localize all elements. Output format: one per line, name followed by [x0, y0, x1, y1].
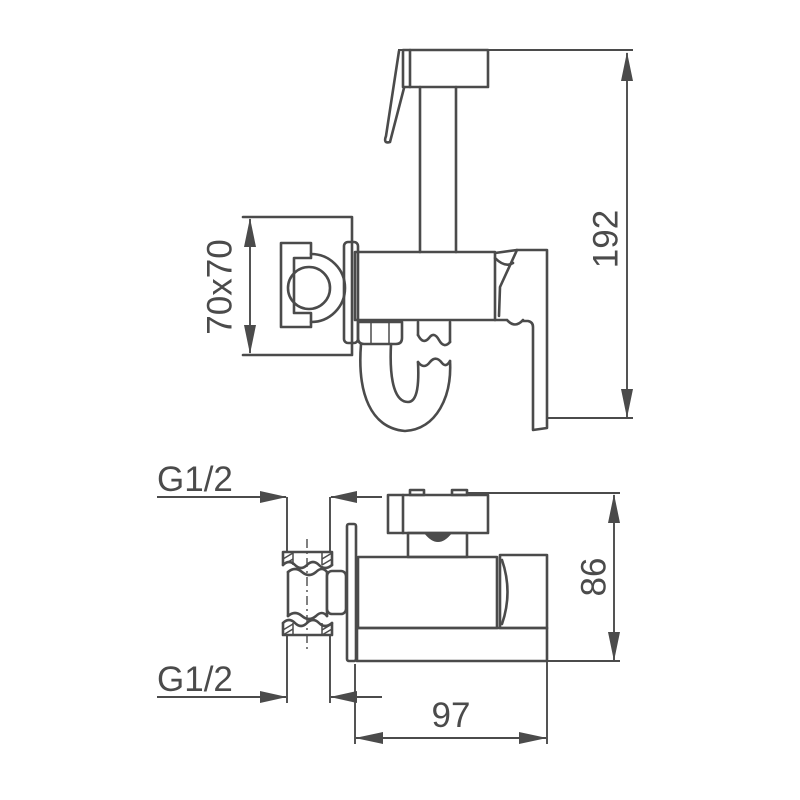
extension-lines — [287, 497, 330, 551]
arrow-up-icon — [621, 52, 633, 81]
inlet-pipe — [283, 539, 346, 650]
thread-bottom-label: G1/2 — [157, 660, 233, 699]
thread-top-label: G1/2 — [157, 460, 233, 499]
valve-body — [355, 252, 495, 320]
arrow-left-icon — [355, 732, 383, 744]
hose-nut — [358, 322, 402, 344]
handle-plan-arc — [502, 560, 508, 624]
plan-view: G1/2 G1/2 86 — [157, 460, 620, 744]
dimension-97: 97 — [355, 631, 547, 744]
handle-base-bump — [495, 320, 523, 325]
depth-dimension-label: 86 — [574, 558, 613, 597]
arrow-down-icon — [608, 632, 620, 661]
sprayer-head — [403, 50, 488, 87]
hose-inner-curve — [391, 344, 419, 402]
lever-handle-neck-line — [499, 250, 517, 316]
body-lower-band — [357, 628, 547, 661]
arrow-right-icon — [260, 491, 287, 503]
arrow-right-icon — [260, 691, 287, 703]
arrow-up-icon — [608, 494, 620, 523]
hose-break-line-2 — [418, 359, 450, 366]
valve-body-plan — [358, 557, 497, 628]
height-dimension-label: 192 — [586, 210, 625, 268]
pipe-connector — [327, 571, 346, 614]
extension-lines — [287, 636, 330, 703]
arrow-left-icon — [330, 691, 357, 703]
hose-nut-facets — [371, 322, 389, 344]
sprayer-stem — [420, 87, 456, 252]
width-dimension-label: 97 — [432, 696, 471, 735]
wall-plate-edge — [347, 524, 356, 661]
holder-bracket — [281, 243, 311, 327]
lever-handle — [495, 250, 547, 430]
arrow-down-icon — [244, 325, 256, 354]
wall-plate — [243, 217, 352, 355]
hose-break-line-1 — [418, 335, 450, 345]
technical-drawing-page: 70x70 192 — [0, 0, 800, 800]
dimension-70x70: 70x70 — [200, 218, 256, 354]
arrow-up-icon — [244, 218, 256, 247]
arrow-right-icon — [519, 732, 547, 744]
arrow-left-icon — [330, 491, 357, 503]
trigger-lever — [385, 51, 404, 142]
dimension-86: 86 — [467, 493, 620, 661]
arrow-down-icon — [621, 389, 633, 418]
hose-outer-curve — [360, 344, 450, 431]
dimension-192: 192 — [547, 52, 633, 418]
faucet-dimension-drawing: 70x70 192 — [0, 0, 800, 800]
sprayer-holder — [388, 490, 488, 557]
holder-saddle-arc — [424, 533, 452, 542]
holder-ring-outer-arc — [311, 254, 345, 322]
plate-dimension-label: 70x70 — [200, 239, 239, 334]
hose-stub — [418, 322, 450, 342]
side-view: 70x70 192 — [200, 50, 633, 431]
